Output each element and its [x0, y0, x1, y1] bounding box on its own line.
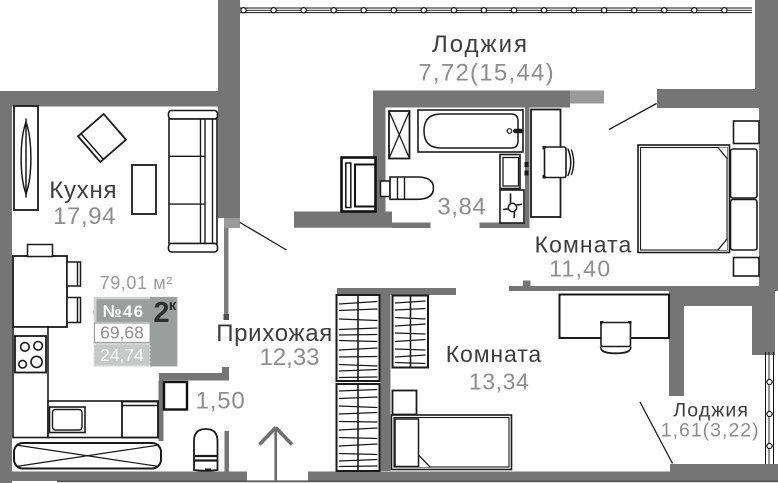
svg-text:69,68: 69,68: [100, 323, 144, 343]
svg-text:№46: №46: [103, 302, 144, 321]
svg-text:12,33: 12,33: [259, 344, 319, 371]
svg-text:3,84: 3,84: [437, 194, 486, 221]
svg-text:Лоджия: Лоджия: [673, 400, 749, 422]
svg-text:24,74: 24,74: [100, 345, 144, 365]
svg-text:1,50: 1,50: [196, 388, 246, 415]
svg-text:11,40: 11,40: [549, 256, 611, 282]
svg-text:Комната: Комната: [446, 341, 542, 367]
svg-text:Лоджия: Лоджия: [432, 31, 529, 58]
svg-text:17,94: 17,94: [53, 203, 116, 230]
svg-text:7,72(15,44): 7,72(15,44): [418, 60, 555, 87]
svg-text:13,34: 13,34: [469, 369, 530, 395]
svg-text:к: к: [169, 297, 177, 314]
svg-text:Прихожая: Прихожая: [216, 320, 333, 347]
svg-text:Кухня: Кухня: [49, 177, 117, 204]
svg-text:1,61(3,22): 1,61(3,22): [661, 420, 760, 442]
svg-text:Комната: Комната: [535, 232, 633, 258]
svg-text:79,01 м²: 79,01 м²: [100, 273, 173, 293]
svg-text:2: 2: [153, 297, 169, 329]
